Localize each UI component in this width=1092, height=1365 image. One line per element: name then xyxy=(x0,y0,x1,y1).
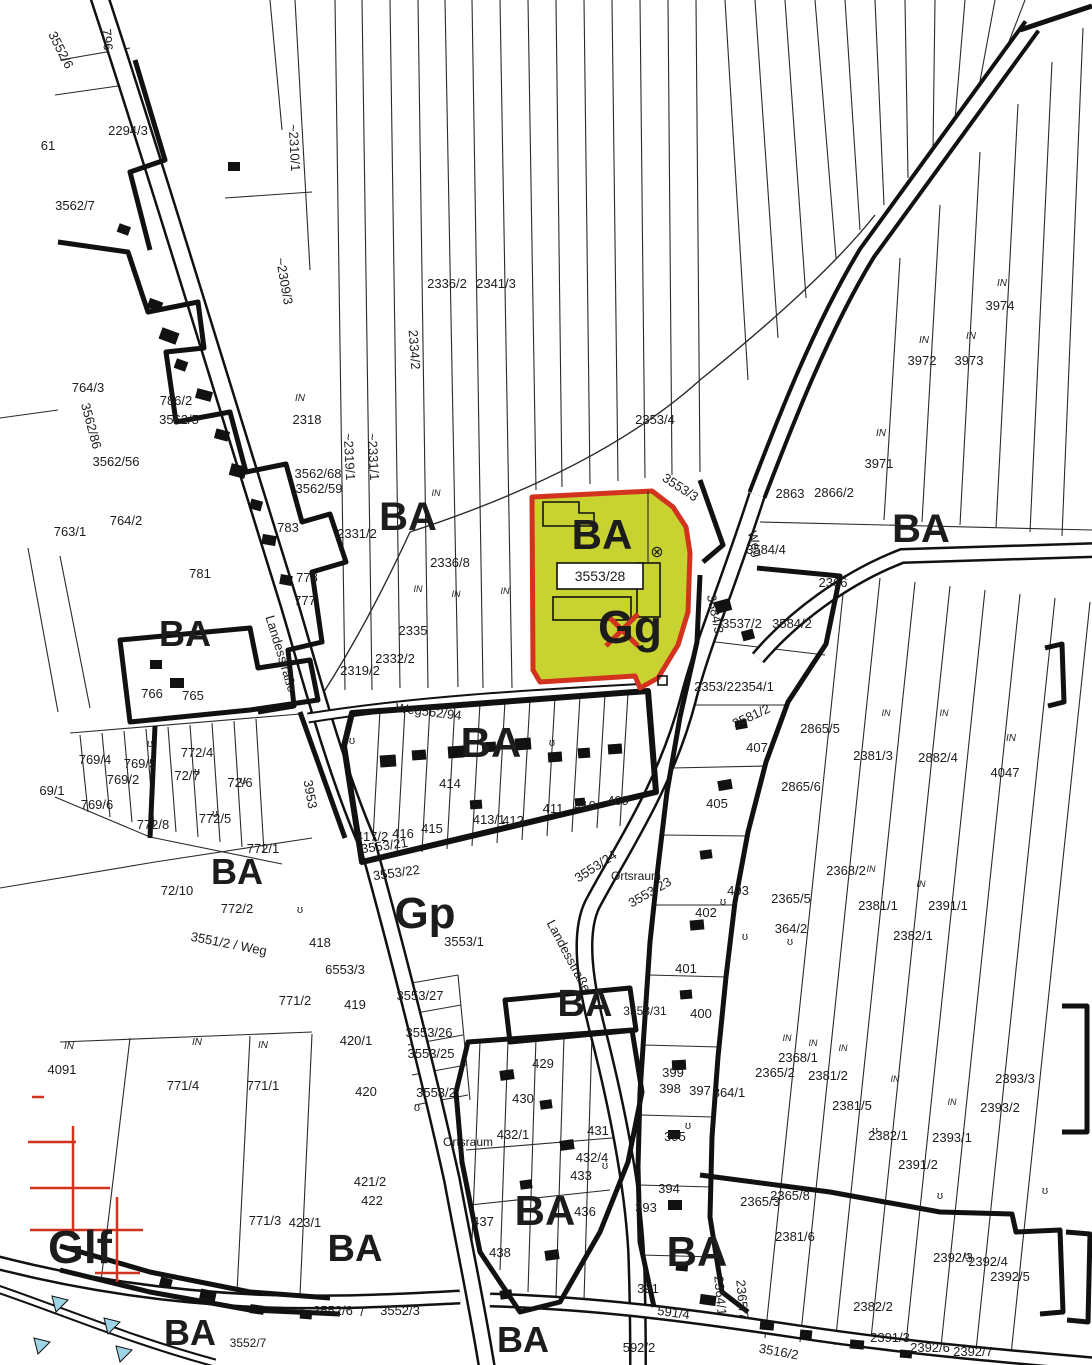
parcel-label: 3553/2 xyxy=(416,1085,456,1100)
parcel-label: 3973 xyxy=(955,353,984,368)
parcel-label: 2336/2 xyxy=(427,276,467,291)
parcel-label: 771/4 xyxy=(167,1078,200,1093)
parcel-label: IN xyxy=(997,278,1008,289)
parcel-label: IN xyxy=(917,879,927,889)
parcel-label: 769/2 xyxy=(107,772,140,787)
parcel-label: 2336/8 xyxy=(430,555,470,570)
cadastral-map: BABABABABABAGpBABABABAGlfBABAGg3553/28⊗2… xyxy=(0,0,1092,1365)
parcel-label: BA xyxy=(892,507,950,551)
parcel-label: 2393/3 xyxy=(995,1071,1035,1086)
parcel-label: ʊ xyxy=(637,1227,643,1239)
parcel-label: 2365/8 xyxy=(770,1188,810,1203)
parcel-label: 395 xyxy=(664,1129,686,1144)
parcel-label: 781 xyxy=(189,566,211,581)
parcel-label: 61 xyxy=(41,138,55,153)
parcel-label: 414 xyxy=(439,776,461,791)
parcel-label: ~2310/1 xyxy=(286,124,303,172)
parcel-label: 2392/5 xyxy=(990,1269,1030,1284)
parcel-label: 2393/2 xyxy=(980,1100,1020,1115)
parcel-label: ʊ xyxy=(212,808,218,820)
parcel-label: 2882/4 xyxy=(918,750,958,765)
parcel-label: 391 xyxy=(637,1281,659,1296)
parcel-label: ʊ xyxy=(549,737,555,749)
parcel-label: IN xyxy=(867,864,877,874)
parcel-label: 2332/2 xyxy=(375,651,415,666)
parcel-label: 3552/6 xyxy=(45,29,76,71)
parcel-label: BA xyxy=(572,511,633,558)
parcel-label: 2368/1 xyxy=(778,1050,818,1065)
parcel-label: 3553/27 xyxy=(397,988,444,1003)
parcel-label: 364/1 xyxy=(713,1085,746,1100)
parcel-label: 397 xyxy=(689,1083,711,1098)
parcel-label: 393 xyxy=(635,1200,657,1215)
parcel-label: IN xyxy=(783,1033,793,1043)
parcel-label: 2392/7 xyxy=(953,1344,993,1359)
parcel-label: 3553/31 xyxy=(623,1004,667,1018)
parcel-label: IN xyxy=(295,393,306,404)
parcel-label: 3553/28 xyxy=(575,568,626,584)
parcel-label: 769/6 xyxy=(81,797,114,812)
parcel-label: ʊ xyxy=(297,904,303,916)
parcel-label: 3553/25 xyxy=(408,1046,455,1061)
parcel-label: ~2309/3 xyxy=(273,257,296,306)
parcel-label: ʊ xyxy=(720,896,726,908)
parcel-label: IN xyxy=(891,1074,901,1084)
parcel-label: IN xyxy=(452,589,462,599)
parcel-label: 409 xyxy=(607,793,629,808)
parcel-label: 394 xyxy=(658,1181,680,1196)
parcel-label: IN xyxy=(882,708,892,718)
parcel-label: 415 xyxy=(421,821,443,836)
parcel-label: IN xyxy=(839,1043,849,1053)
parcel-label: IN xyxy=(414,584,424,594)
parcel-label: 2365/5 xyxy=(771,891,811,906)
parcel-label: 769/5 xyxy=(124,756,157,771)
parcel-label: BA xyxy=(211,851,263,892)
parcel-label: 3953 xyxy=(301,779,321,810)
parcel-label: / xyxy=(360,1304,364,1319)
parcel-label: 3552/6 xyxy=(313,1303,353,1318)
parcel-label: 2392/6 xyxy=(910,1340,950,1355)
parcel-label: 364/2 xyxy=(775,921,808,936)
parcel-label: 419 xyxy=(344,997,366,1012)
parcel-label: 2391/1 xyxy=(928,898,968,913)
parcel-label: 402 xyxy=(695,905,717,920)
parcel-label: 413/1 xyxy=(473,812,506,827)
parcel-label: 3974 xyxy=(986,298,1015,313)
parcel-label: 2335 xyxy=(399,623,428,638)
parcel-label: Glf xyxy=(48,1221,113,1273)
parcel-label: 3562/59 xyxy=(296,481,343,496)
parcel-label: 423/1 xyxy=(289,1215,322,1230)
parcel-label: 2382/1 xyxy=(893,928,933,943)
parcel-label: 3552/3 xyxy=(380,1303,420,1318)
parcel-label: 436 xyxy=(574,1204,596,1219)
parcel-label: 421/2 xyxy=(354,1174,387,1189)
parcel-label: 437 xyxy=(472,1214,494,1229)
parcel-label: 2381/6 xyxy=(775,1229,815,1244)
parcel-label: 764/2 xyxy=(110,513,143,528)
parcel-label: 771/2 xyxy=(279,993,312,1008)
parcel-label: 2331/2 xyxy=(337,526,377,541)
parcel-label: ʊ xyxy=(742,931,748,943)
parcel-label: BA xyxy=(164,1312,216,1353)
parcel-label: BA xyxy=(461,719,522,766)
parcel-label: Ortsraum xyxy=(443,1135,493,1149)
parcel-label: ʊ xyxy=(240,775,246,787)
parcel-label: 422 xyxy=(361,1193,383,1208)
parcel-label: 418 xyxy=(309,935,331,950)
parcel-label: 2381/5 xyxy=(832,1098,872,1113)
parcel-label: 2865/5 xyxy=(800,721,840,736)
parcel-label: 3562/56 xyxy=(93,454,140,469)
parcel-label: 433 xyxy=(570,1168,592,1183)
parcel-label: IN xyxy=(940,708,950,718)
parcel-label: IN xyxy=(501,586,511,596)
parcel-label: 6553/3 xyxy=(325,962,365,977)
parcel-label: 2366 xyxy=(819,575,848,590)
parcel-label: IN xyxy=(948,1097,958,1107)
parcel-label: IN xyxy=(258,1040,269,1051)
parcel-label: BA xyxy=(379,495,437,539)
parcel-label: IN xyxy=(919,335,930,346)
parcel-label: 786/2 xyxy=(160,393,193,408)
parcel-label: 3971 xyxy=(865,456,894,471)
parcel-label: 2334/2 xyxy=(406,329,424,370)
parcel-label: BA xyxy=(667,1228,728,1275)
parcel-label: ʊ xyxy=(349,735,355,747)
parcel-label: 438 xyxy=(489,1245,511,1260)
parcel-label: 772/2 xyxy=(221,901,254,916)
parcel-label: ʊ xyxy=(194,766,200,778)
parcel-label: 3537/2 xyxy=(722,616,762,631)
parcel-label: 783 xyxy=(277,520,299,535)
parcel-label: 2294/3 xyxy=(108,123,148,138)
parcel-label: ʊ xyxy=(787,936,793,948)
parcel-label: ~2331/1 xyxy=(365,433,382,481)
parcel-label: 72/10 xyxy=(161,883,194,898)
parcel-label: 2865/6 xyxy=(781,779,821,794)
parcel-label: 764/3 xyxy=(72,380,105,395)
parcel-label: 430 xyxy=(512,1091,534,1106)
parcel-label: 4047 xyxy=(991,765,1020,780)
parcel-label: 765 xyxy=(182,688,204,703)
parcel-label: 2393/1 xyxy=(932,1130,972,1145)
parcel-label: 2364/1 xyxy=(711,1275,729,1316)
parcel-label: 420 xyxy=(355,1084,377,1099)
parcel-label: 2382/2 xyxy=(853,1299,893,1314)
parcel-label: 3552/7 xyxy=(230,1336,267,1350)
parcel-label: ʊ xyxy=(147,738,153,750)
parcel-label: 3562/7 xyxy=(55,198,95,213)
parcel-label: 2391/3 xyxy=(870,1330,910,1345)
parcel-label: 3584/2 xyxy=(772,616,812,631)
parcel-label: IN xyxy=(1006,733,1017,744)
parcel-label: Gp xyxy=(394,889,455,938)
parcel-label: 3562/68 xyxy=(295,466,342,481)
parcel-label: 2381/3 xyxy=(853,748,893,763)
parcel-label: 771/3 xyxy=(249,1213,282,1228)
parcel-label: ʊ xyxy=(964,1250,970,1262)
parcel-label: BA xyxy=(159,613,211,654)
parcel-label: Gg xyxy=(598,601,662,653)
parcel-label: 2318 xyxy=(293,412,322,427)
parcel-label: 412 xyxy=(502,813,524,828)
parcel-label: 2391/2 xyxy=(898,1157,938,1172)
parcel-label: 2863 xyxy=(776,486,805,501)
parcel-label: 3972 xyxy=(908,353,937,368)
parcel-label: BA xyxy=(328,1228,383,1270)
parcel-label: 3516/2 xyxy=(758,1341,800,1363)
parcel-label: 431 xyxy=(587,1123,609,1138)
parcel-label: 69/1 xyxy=(39,783,64,798)
parcel-label: 399 xyxy=(662,1065,684,1080)
parcel-label: ʊ xyxy=(937,1190,943,1202)
parcel-label: ʊ xyxy=(685,1120,691,1132)
parcel-label: 2392/4 xyxy=(968,1254,1008,1269)
parcel-label: 772/4 xyxy=(181,745,214,760)
parcel-label: 2319/2 xyxy=(340,663,380,678)
parcel-label: ʊ xyxy=(414,1102,420,1114)
parcel-label: 2354/1 xyxy=(734,679,774,694)
parcel-label: 411 xyxy=(543,801,564,816)
parcel-label: 2365/2 xyxy=(755,1065,795,1080)
parcel-label: 772/1 xyxy=(247,841,280,856)
parcel-label: ʊ xyxy=(872,1125,878,1137)
parcel-label: 2365/7 xyxy=(733,1279,751,1320)
parcel-label: 420/1 xyxy=(340,1033,373,1048)
parcel-label: ʊ xyxy=(602,1160,608,1172)
parcel-label: IN xyxy=(876,428,887,439)
parcel-label: ⊗ xyxy=(650,544,663,561)
parcel-label: 401 xyxy=(675,961,697,976)
parcel-label: 766 xyxy=(141,686,163,701)
parcel-label: 2381/2 xyxy=(808,1068,848,1083)
parcel-label: IN xyxy=(192,1037,203,1048)
parcel-label: 403 xyxy=(727,883,749,898)
parcel-label: 777 xyxy=(294,593,316,608)
parcel-label: 2866/2 xyxy=(814,485,854,500)
parcel-label: IN xyxy=(64,1041,75,1052)
parcel-label: 2381/1 xyxy=(858,898,898,913)
parcel-label: IN xyxy=(809,1038,819,1048)
parcel-label: 2353/2 xyxy=(694,679,734,694)
parcel-label: 432/1 xyxy=(497,1127,530,1142)
cadastral-map-page: BABABABABABAGpBABABABAGlfBABAGg3553/28⊗2… xyxy=(0,0,1092,1365)
parcel-label: 2353/4 xyxy=(635,412,675,427)
parcel-label: 772/8 xyxy=(137,817,170,832)
parcel-label: 778 xyxy=(296,570,318,585)
parcel-label: ʊ xyxy=(1042,1185,1048,1197)
parcel-label: ~2319/1 xyxy=(341,433,358,481)
parcel-label: 3562/5 xyxy=(159,412,199,427)
parcel-label: 771/1 xyxy=(247,1078,280,1093)
parcel-label: 398 xyxy=(659,1081,681,1096)
parcel-label: 763/1 xyxy=(54,524,87,539)
parcel-label: 3553/26 xyxy=(406,1025,453,1040)
parcel-label: BA xyxy=(497,1319,549,1360)
parcel-label: 769/4 xyxy=(79,752,112,767)
parcel-label: 400 xyxy=(690,1006,712,1021)
parcel-label: 3551/2 / Weg xyxy=(190,929,269,958)
parcel-label: 407 xyxy=(746,740,768,755)
parcel-label: IN xyxy=(432,488,442,498)
parcel-label: 405 xyxy=(706,796,728,811)
parcel-label: IN xyxy=(966,331,977,342)
parcel-label: 410 xyxy=(574,798,596,813)
parcel-label: 3562/86 xyxy=(78,401,105,450)
parcel-label: 2368/2 xyxy=(826,863,866,878)
parcel-label: 2341/3 xyxy=(476,276,516,291)
parcel-label: 796 xyxy=(99,28,116,51)
parcel-label: 592/2 xyxy=(623,1340,656,1355)
parcel-label: 429 xyxy=(532,1056,554,1071)
parcel-label: 4091 xyxy=(48,1062,77,1077)
parcel-label: 3553/1 xyxy=(444,934,484,949)
parcel-label: BA xyxy=(515,1187,576,1234)
